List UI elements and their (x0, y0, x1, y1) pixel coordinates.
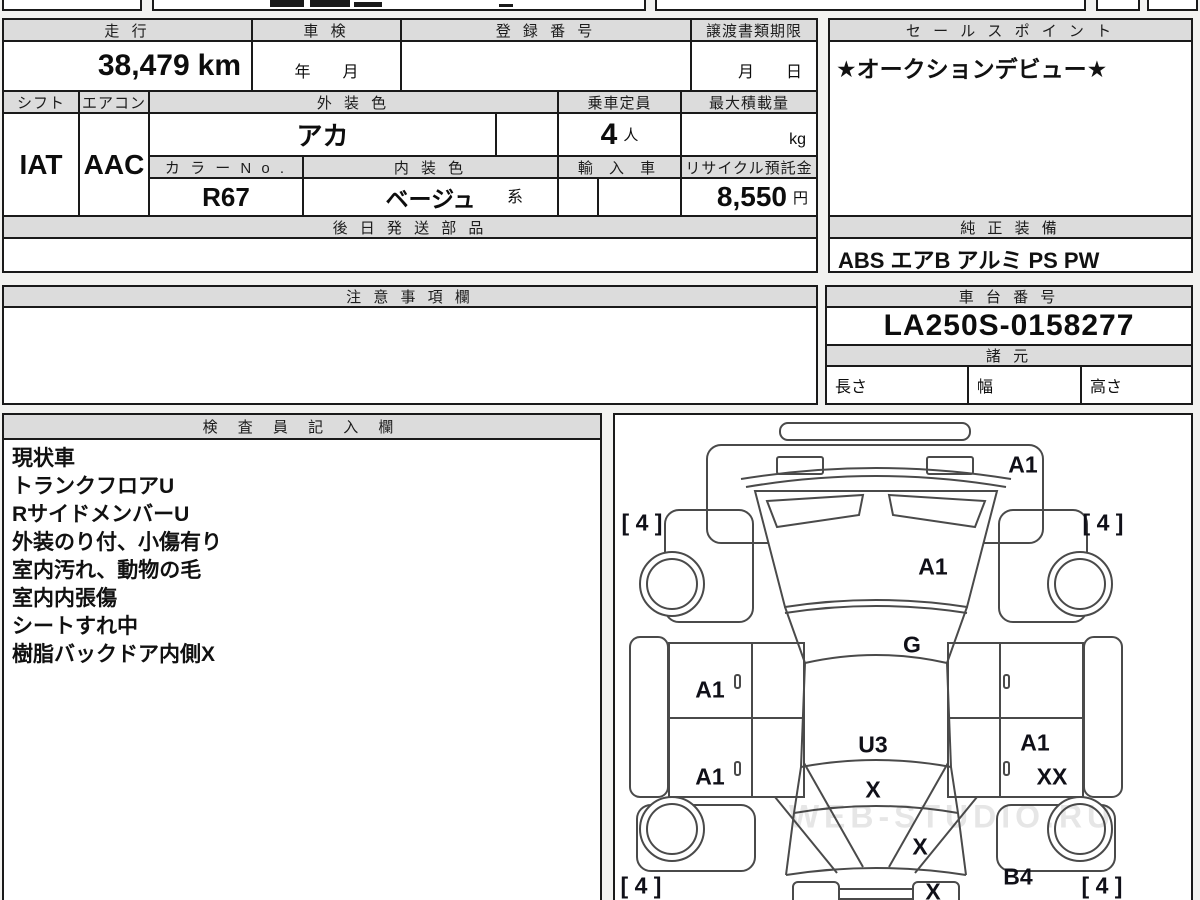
import-value-cell-b (597, 177, 682, 217)
shift-value: IAT (2, 112, 80, 217)
diagram-mark: XX (1037, 764, 1068, 791)
clipped-top-cell (152, 0, 646, 11)
inspection-header: 車 検 (251, 18, 402, 42)
inspector-note-line: RサイドメンバーU (12, 501, 594, 529)
recycle-deposit-value: 8,550 円 (680, 177, 818, 217)
inspector-note-line: 室内汚れ、動物の毛 (12, 557, 594, 585)
inspector-note-line: 樹脂バックドア内側X (12, 641, 594, 669)
diagram-mark: A1 (1020, 730, 1049, 757)
inspector-note-line: トランクフロアU (12, 473, 594, 501)
recycle-deposit-header: リサイクル預託金 (680, 155, 818, 179)
inspector-notes-list: 現状車トランクフロアURサイドメンバーU外装のり付、小傷有り室内汚れ、動物の毛室… (12, 445, 594, 669)
interior-color-suffix: 系 (507, 183, 523, 207)
spec-height-cell: 高さ (1080, 365, 1193, 405)
recycle-deposit-number: 8,550 (717, 181, 787, 213)
mileage-header: 走 行 (2, 18, 253, 42)
later-parts-header: 後 日 発 送 部 品 (2, 215, 818, 239)
diagram-mark: [ 4 ] (621, 873, 662, 900)
color-no-header: カ ラ ー N o . (148, 155, 304, 179)
spec-length-cell: 長さ (825, 365, 969, 405)
transfer-deadline-header: 譲渡書類期限 (690, 18, 818, 42)
inspector-note-line: 室内内張傷 (12, 585, 594, 613)
transfer-deadline-value: 月 日 (690, 40, 818, 92)
diagram-mark: U3 (858, 732, 887, 759)
inspection-value: 年 月 (251, 40, 402, 92)
clipped-glyphs (270, 0, 304, 7)
capacity-number: 4 (601, 118, 618, 152)
diagram-mark: X (865, 777, 880, 804)
exterior-color-value: アカ (148, 112, 497, 157)
import-value-cell-a (557, 177, 599, 217)
genuine-equipment-value: ABS エアB アルミ PS PW (828, 237, 1193, 273)
notes-header: 注 意 事 項 欄 (2, 285, 818, 308)
clipped-top-cell (1096, 0, 1140, 11)
capacity-value: 4 人 (557, 112, 682, 157)
diagram-mark: B4 (1003, 864, 1032, 891)
chassis-number-header: 車 台 番 号 (825, 285, 1193, 308)
inspector-notes-header: 検 査 員 記 入 欄 (4, 415, 600, 440)
diagram-mark: X (925, 879, 940, 900)
inspector-notes-box: 検 査 員 記 入 欄 現状車トランクフロアURサイドメンバーU外装のり付、小傷… (2, 413, 602, 900)
clipped-top-cell (655, 0, 1086, 11)
registration-value (400, 40, 692, 92)
diagram-mark: [ 4 ] (1083, 510, 1124, 537)
max-load-header: 最大積載量 (680, 90, 818, 114)
aircon-value: AAC (78, 112, 150, 217)
import-header: 輸 入 車 (557, 155, 682, 179)
aircon-header: エアコン (78, 90, 150, 114)
spec-width-cell: 幅 (967, 365, 1082, 405)
diagram-mark: A1 (695, 677, 724, 704)
spec-header: 諸 元 (825, 344, 1193, 367)
interior-color-value: ベージュ 系 (302, 177, 559, 217)
notes-value (2, 306, 818, 405)
sales-point-header: セ ー ル ス ポ イ ン ト (828, 18, 1193, 42)
mileage-number: 38,479 (98, 49, 190, 83)
sales-point-value: ★オークションデビュー★ (828, 40, 1193, 217)
mileage-unit: km (198, 49, 241, 83)
inspector-note-line: 現状車 (12, 445, 594, 473)
exterior-color-extra-cell (495, 112, 559, 157)
interior-color-name: ベージュ (386, 180, 476, 214)
clipped-top-cell (1147, 0, 1198, 11)
max-load-value: kg (680, 112, 818, 157)
recycle-deposit-unit: 円 (793, 187, 808, 208)
exterior-color-header: 外 装 色 (148, 90, 559, 114)
inspector-note-line: シートすれ中 (12, 613, 594, 641)
diagram-mark: [ 4 ] (622, 510, 663, 537)
color-no-value: R67 (148, 177, 304, 217)
car-diagram-labels: A1[ 4 ][ 4 ]A1GA1U3A1A1XXXXB4X[ 4 ][ 4 ] (615, 415, 1191, 900)
shift-header: シフト (2, 90, 80, 114)
clipped-glyphs (310, 0, 350, 7)
capacity-unit: 人 (623, 124, 638, 145)
diagram-mark: A1 (918, 554, 947, 581)
clipped-glyphs (499, 4, 513, 7)
clipped-glyphs (354, 2, 382, 7)
mileage-value: 38,479 km (2, 40, 253, 92)
chassis-number-value: LA250S-0158277 (825, 306, 1193, 346)
car-diagram-box: WEB-STUDIO.RU A1[ 4 ][ 4 ]A1GA1U3A1A1XXX… (613, 413, 1193, 900)
capacity-header: 乗車定員 (557, 90, 682, 114)
diagram-mark: G (903, 632, 921, 659)
genuine-equipment-header: 純 正 装 備 (828, 215, 1193, 239)
diagram-mark: X (912, 834, 927, 861)
diagram-mark: A1 (695, 764, 724, 791)
later-parts-value (2, 237, 818, 273)
diagram-mark: [ 4 ] (1082, 873, 1123, 900)
clipped-top-cell (2, 0, 142, 11)
registration-header: 登 録 番 号 (400, 18, 692, 42)
diagram-mark: A1 (1008, 452, 1037, 479)
inspector-note-line: 外装のり付、小傷有り (12, 529, 594, 557)
interior-color-header: 内 装 色 (302, 155, 559, 179)
auction-sheet: 走 行 車 検 登 録 番 号 譲渡書類期限 38,479 km 年 月 月 日… (0, 0, 1200, 900)
